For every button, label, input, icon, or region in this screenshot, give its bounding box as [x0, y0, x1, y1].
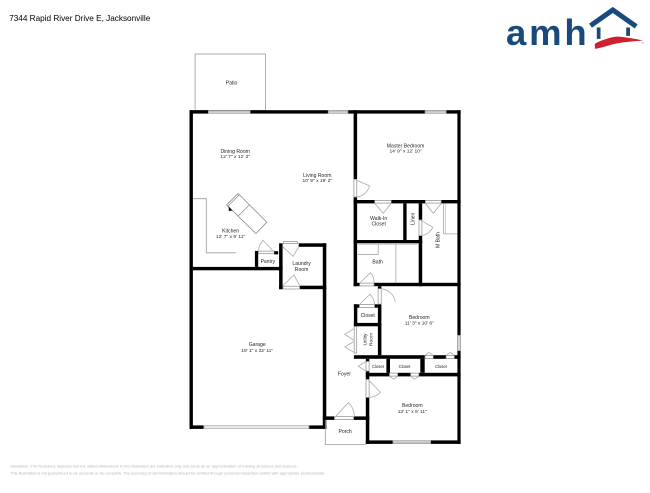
svg-text:Room: Room — [369, 333, 375, 346]
svg-text:7344 Rapid River Drive E, Jack: 7344 Rapid River Drive E, Jacksonville — [9, 14, 151, 23]
svg-text:Kitchen: Kitchen — [222, 229, 239, 235]
svg-text:Bedroom: Bedroom — [402, 403, 423, 409]
svg-text:Patio: Patio — [226, 80, 238, 86]
svg-text:amh: amh — [506, 12, 589, 53]
svg-text:Foyer: Foyer — [338, 372, 351, 378]
svg-text:12' 7" x 9' 11": 12' 7" x 9' 11" — [216, 234, 245, 240]
svg-text:Utility: Utility — [363, 333, 369, 346]
svg-text:Bath: Bath — [372, 260, 383, 266]
svg-text:Closet: Closet — [371, 222, 386, 228]
svg-text:Pantry: Pantry — [261, 259, 276, 265]
svg-text:Closet: Closet — [435, 364, 448, 369]
svg-text:Bedroom: Bedroom — [409, 315, 430, 321]
svg-text:Garage: Garage — [249, 342, 266, 348]
svg-text:Living Room: Living Room — [303, 173, 331, 179]
svg-text:Master Bedroom: Master Bedroom — [387, 143, 425, 149]
svg-text:Porch: Porch — [338, 429, 351, 435]
svg-text:14' 9" x 12' 10": 14' 9" x 12' 10" — [389, 149, 422, 155]
svg-text:13' 1" x 9' 11": 13' 1" x 9' 11" — [398, 409, 427, 415]
svg-text:Dining Room: Dining Room — [220, 149, 249, 155]
svg-text:11' 3" x 10' 6": 11' 3" x 10' 6" — [405, 321, 434, 327]
svg-text:Closet: Closet — [372, 364, 385, 369]
svg-text:This illustration is not guara: This illustration is not guaranteed to b… — [10, 471, 325, 476]
svg-text:Linen: Linen — [410, 212, 416, 224]
svg-text:12' 7" x 12' 3": 12' 7" x 12' 3" — [220, 154, 250, 160]
svg-text:Closet: Closet — [361, 313, 376, 319]
svg-text:Disclaimer: The floorplans dep: Disclaimer: The floorplans depicted and … — [10, 464, 298, 469]
svg-text:Closet: Closet — [399, 364, 412, 369]
svg-text:Room: Room — [295, 267, 309, 273]
svg-text:19' 1" x 22' 11": 19' 1" x 22' 11" — [241, 348, 273, 354]
svg-text:M Bath: M Bath — [436, 232, 442, 248]
svg-text:10' 9" x 19' 2": 10' 9" x 19' 2" — [303, 178, 333, 184]
